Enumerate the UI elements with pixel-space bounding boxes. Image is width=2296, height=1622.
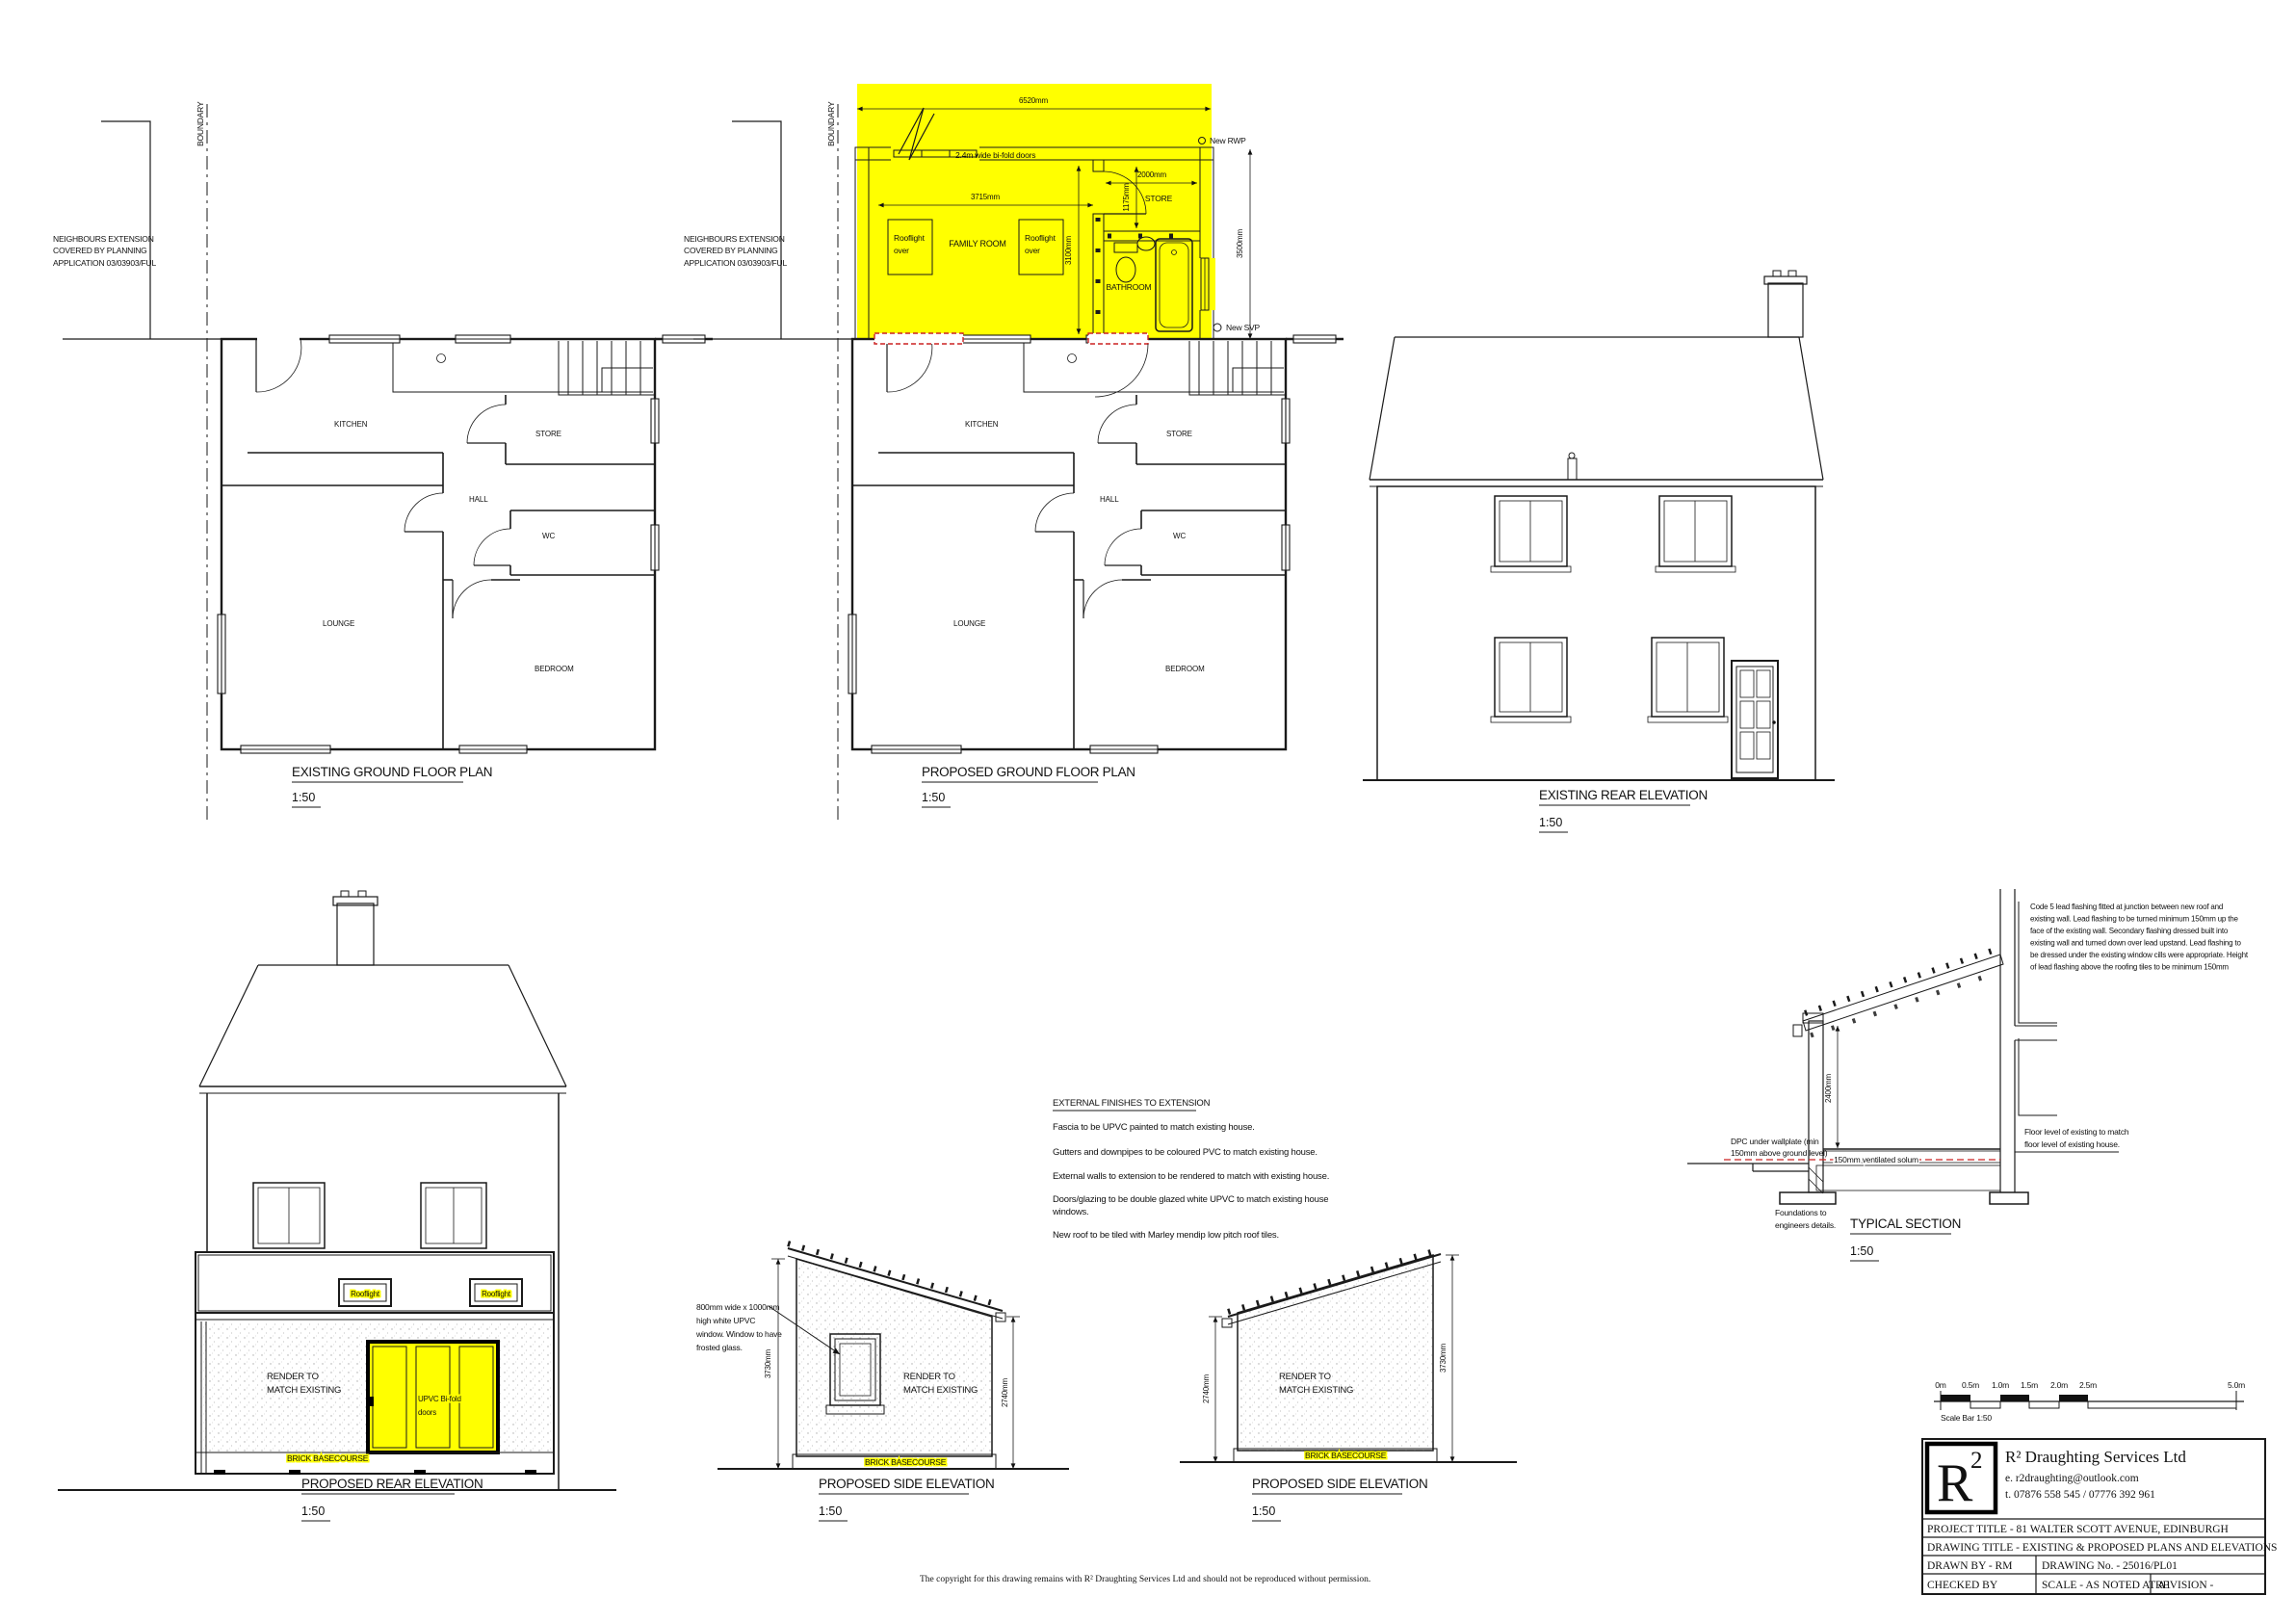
architectural-drawing-sheet: KITCHEN STORE HALL WC LOUNGE BEDROOM BOU… <box>0 0 2296 1622</box>
dimension-wall-height: 2400mm <box>1824 1026 1838 1148</box>
proposed-side-elevation-left: RENDER TO MATCH EXISTING BRICK BASECOURS… <box>695 1243 1069 1521</box>
boundary-label: BOUNDARY <box>196 101 205 146</box>
new-svp-symbol <box>1213 324 1221 331</box>
neighbour-note-line: APPLICATION 03/03903/FUL <box>53 258 156 268</box>
rooflight-label: Rooflight <box>351 1290 380 1298</box>
notes-line: Fascia to be UPVC painted to match exist… <box>1053 1122 1255 1133</box>
bifold-label: UPVC Bi-fold <box>418 1395 461 1403</box>
basecourse-label: BRICK BASECOURSE <box>1305 1451 1387 1460</box>
house-wall <box>1377 486 1815 780</box>
view-title: PROPOSED SIDE ELEVATION <box>1252 1477 1427 1491</box>
notes-line: New roof to be tiled with Marley mendip … <box>1053 1230 1279 1241</box>
neighbour-note-line: NEIGHBOURS EXTENSION <box>53 234 154 244</box>
dim-label: 2400mm <box>1824 1074 1833 1103</box>
chimney <box>333 891 378 965</box>
bifold-note: 2.4m wide bi-fold doors <box>955 150 1035 160</box>
neighbour-note: NEIGHBOURS EXTENSION COVERED BY PLANNING… <box>684 234 787 268</box>
view-title: PROPOSED GROUND FLOOR PLAN <box>922 765 1135 779</box>
new-svp-label: New SVP <box>1226 323 1261 332</box>
basecourse-label: BRICK BASECOURSE <box>287 1453 369 1463</box>
dpc-note-line: DPC under wallplate (min <box>1731 1137 1819 1146</box>
bifold-doors-elevation: UPVC Bi-fold doors <box>368 1342 498 1452</box>
dim-label: 6520mm <box>1019 96 1048 105</box>
existing-rear-elevation: EXISTING REAR ELEVATION 1:50 <box>1363 271 1835 832</box>
render-texture <box>796 1259 992 1456</box>
proposed-rear-elevation: Rooflight Rooflight RENDER TO MATCH EXIS… <box>58 891 616 1521</box>
neighbour-note-line: NEIGHBOURS EXTENSION <box>684 234 785 244</box>
view-title: EXISTING REAR ELEVATION <box>1539 788 1708 802</box>
rooflight-label: over <box>1025 246 1040 255</box>
room-label-family-room: FAMILY ROOM <box>949 239 1005 249</box>
notes-line: windows. <box>1052 1207 1088 1217</box>
room-label-store-new: STORE <box>1145 194 1173 203</box>
new-bathroom-door-swing <box>1095 344 1148 397</box>
existing-ground-floor-plan: BOUNDARY NEIGHBOURS EXTENSION COVERED BY… <box>53 101 713 824</box>
view-scale: 1:50 <box>1252 1504 1275 1518</box>
foundations-line: engineers details. <box>1775 1220 1836 1230</box>
extension-highlight-area <box>857 84 1212 339</box>
floor-level-line: floor level of existing house. <box>2024 1139 2120 1149</box>
flashing-line: be dressed under the existing window cil… <box>2030 951 2249 959</box>
foundations-note: Foundations to engineers details. <box>1775 1208 1836 1230</box>
room-label-bathroom: BATHROOM <box>1107 282 1152 292</box>
render-label: MATCH EXISTING <box>903 1385 978 1396</box>
window <box>421 1183 486 1248</box>
render-label: RENDER TO <box>267 1372 319 1382</box>
scale-tick-label: 2.0m <box>2050 1380 2068 1390</box>
new-wall-section <box>1780 1021 1836 1204</box>
company-phone: t. 07876 558 545 / 07776 392 961 <box>2005 1489 2155 1501</box>
view-title: EXISTING GROUND FLOOR PLAN <box>292 765 492 779</box>
view-scale: 1:50 <box>292 791 315 804</box>
window-note-line: high white UPVC <box>696 1316 755 1325</box>
notes-line: Doors/glazing to be double glazed white … <box>1053 1194 1328 1205</box>
dim-label: 2740mm <box>1202 1374 1211 1403</box>
roof-outline <box>199 965 566 1086</box>
notes-heading: EXTERNAL FINISHES TO EXTENSION <box>1053 1098 1211 1109</box>
drawing-number: DRAWING No. - 25016/PL01 <box>2042 1560 2178 1572</box>
copyright-note: The copyright for this drawing remains w… <box>920 1574 1370 1584</box>
roof-outline <box>1370 337 1823 480</box>
drawn-by: DRAWN BY - RM <box>1927 1560 2012 1572</box>
proposed-side-elevation-right: RENDER TO MATCH EXISTING BRICK BASECOURS… <box>1180 1249 1517 1521</box>
scale-tick-label: 1.0m <box>1992 1380 2009 1390</box>
dim-label: 2000mm <box>1137 170 1166 179</box>
back-door <box>1732 661 1778 778</box>
neighbour-extension-outline <box>63 121 222 339</box>
window <box>1648 638 1728 722</box>
dim-label: 3100mm <box>1064 236 1073 265</box>
revision: REVISION - <box>2155 1580 2214 1591</box>
rooflight-elevation: Rooflight <box>339 1279 391 1306</box>
new-rwp-label: New RWP <box>1210 136 1246 145</box>
solum-note: 150mm ventilated solum <box>1834 1155 1918 1164</box>
company-name: R² Draughting Services Ltd <box>2005 1448 2186 1466</box>
neighbour-note-line: COVERED BY PLANNING <box>53 246 147 255</box>
new-foundation <box>1780 1192 1836 1204</box>
dim-label: 3730mm <box>1439 1344 1448 1373</box>
extension-roof-tiles <box>198 1255 551 1311</box>
basecourse-label: BRICK BASECOURSE <box>865 1457 947 1467</box>
proposed-extension-plan: Rooflight over Rooflight over FAMILY ROO… <box>855 84 1261 339</box>
dim-label: 3715mm <box>971 193 1000 201</box>
floor-level-line: Floor level of existing to match <box>2024 1127 2129 1137</box>
sheet-scale: SCALE - AS NOTED AT A1 <box>2042 1580 2172 1591</box>
window <box>1491 638 1571 722</box>
foundations-line: Foundations to <box>1775 1208 1827 1217</box>
flashing-line: Code 5 lead flashing fitted at junction … <box>2030 903 2223 911</box>
rooflight-label: Rooflight <box>1025 233 1057 243</box>
new-roof-section <box>1793 950 2003 1036</box>
notes-line: Gutters and downpipes to be coloured PVC… <box>1053 1147 1318 1158</box>
rooflight-label: Rooflight <box>894 233 926 243</box>
scale-bar-caption: Scale Bar 1:50 <box>1941 1413 1992 1423</box>
dim-label: 1175mm <box>1122 183 1131 212</box>
scale-tick-label: 1.5m <box>2021 1380 2038 1390</box>
scale-tick-label: 5.0m <box>2228 1380 2245 1390</box>
flashing-line: face of the existing wall. Secondary fla… <box>2030 927 2229 935</box>
logo-r: R <box>1937 1453 1973 1513</box>
neighbour-note: NEIGHBOURS EXTENSION COVERED BY PLANNING… <box>53 234 156 268</box>
title-block: R 2 R² Draughting Services Ltd e. r2drau… <box>1922 1439 2277 1594</box>
gutter <box>1222 1319 1232 1327</box>
flashing-note: Code 5 lead flashing fitted at junction … <box>2019 902 2249 1115</box>
notes-line: External walls to extension to be render… <box>1053 1171 1329 1182</box>
company-email: e. r2draughting@outlook.com <box>2005 1473 2139 1484</box>
window <box>253 1183 325 1248</box>
rooflight-label: over <box>894 246 909 255</box>
window <box>1656 496 1735 572</box>
extension-elevation: Rooflight Rooflight RENDER TO MATCH EXIS… <box>196 1252 554 1475</box>
view-scale: 1:50 <box>1539 816 1562 829</box>
neighbour-extension-outline <box>693 121 852 339</box>
external-finishes-notes: EXTERNAL FINISHES TO EXTENSION Fascia to… <box>1052 1098 1329 1241</box>
view-title: TYPICAL SECTION <box>1850 1216 1961 1231</box>
view-scale: 1:50 <box>301 1504 325 1518</box>
scale-bar-segments <box>1941 1395 2088 1401</box>
dim-label: 3730mm <box>764 1349 772 1378</box>
typical-section: 150mm ventilated solum 2400mm DPC under … <box>1687 889 2249 1261</box>
scale-tick-label: 0.5m <box>1962 1380 1979 1390</box>
render-label: MATCH EXISTING <box>267 1385 341 1396</box>
view-title: PROPOSED REAR ELEVATION <box>301 1477 483 1491</box>
dpc-note: DPC under wallplate (min 150mm above gro… <box>1731 1137 1828 1158</box>
drawing-title: DRAWING TITLE - EXISTING & PROPOSED PLAN… <box>1927 1542 2277 1554</box>
proposed-ground-floor-plan: BOUNDARY NEIGHBOURS EXTENSION COVERED BY… <box>684 84 1344 824</box>
rooflight-label: Rooflight <box>482 1290 511 1298</box>
window-note-line: frosted glass. <box>696 1343 743 1352</box>
checked-by: CHECKED BY <box>1927 1580 1998 1591</box>
view-scale: 1:50 <box>1850 1244 1873 1258</box>
existing-foundation <box>1990 1192 2028 1204</box>
gutter <box>1793 1025 1802 1036</box>
chimney <box>1764 271 1807 337</box>
boundary-label: BOUNDARY <box>826 101 836 146</box>
scale-tick-label: 0m <box>1935 1380 1946 1390</box>
bifold-label: doors <box>418 1408 436 1417</box>
logo-2: 2 <box>1970 1448 1983 1474</box>
render-label: RENDER TO <box>1279 1372 1331 1382</box>
removed-wall-dashed <box>1088 333 1148 344</box>
view-scale: 1:50 <box>819 1504 842 1518</box>
window <box>1491 496 1571 572</box>
scale-tick-label: 2.5m <box>2079 1380 2097 1390</box>
view-title: PROPOSED SIDE ELEVATION <box>819 1477 994 1491</box>
neighbour-note-line: COVERED BY PLANNING <box>684 246 778 255</box>
bathroom-window-symbol <box>1198 258 1215 310</box>
render-label: RENDER TO <box>903 1372 955 1382</box>
dim-label: 2740mm <box>1001 1378 1009 1407</box>
flashing-line: existing wall and turned down over lead … <box>2030 939 2241 948</box>
roof-vent <box>1568 453 1577 480</box>
window-note-line: window. Window to have <box>695 1329 782 1339</box>
brick-basecourse-band <box>196 1452 554 1474</box>
rooflight-elevation: Rooflight <box>470 1279 522 1306</box>
existing-wall-section <box>1990 889 2119 1204</box>
removed-wall-dashed <box>874 333 963 344</box>
floor-level-note: Floor level of existing to match floor l… <box>2024 1127 2129 1149</box>
dim-label: 3500mm <box>1236 229 1244 258</box>
dpc-note-line: 150mm above ground level) <box>1731 1148 1828 1158</box>
scale-bar: 0m 0.5m 1.0m 1.5m 2.0m 2.5m 5.0m Scale B… <box>1934 1380 2245 1423</box>
render-label: MATCH EXISTING <box>1279 1385 1353 1396</box>
window-note-line: 800mm wide x 1000mm <box>696 1302 780 1312</box>
flashing-line: existing wall. Lead flashing to be turne… <box>2030 915 2238 924</box>
project-title: PROJECT TITLE - 81 WALTER SCOTT AVENUE, … <box>1927 1524 2229 1535</box>
ground-line <box>1687 1164 1809 1171</box>
neighbour-note-line: APPLICATION 03/03903/FUL <box>684 258 787 268</box>
view-scale: 1:50 <box>922 791 945 804</box>
flashing-line: of lead flashing above the roofing tiles… <box>2030 963 2229 972</box>
